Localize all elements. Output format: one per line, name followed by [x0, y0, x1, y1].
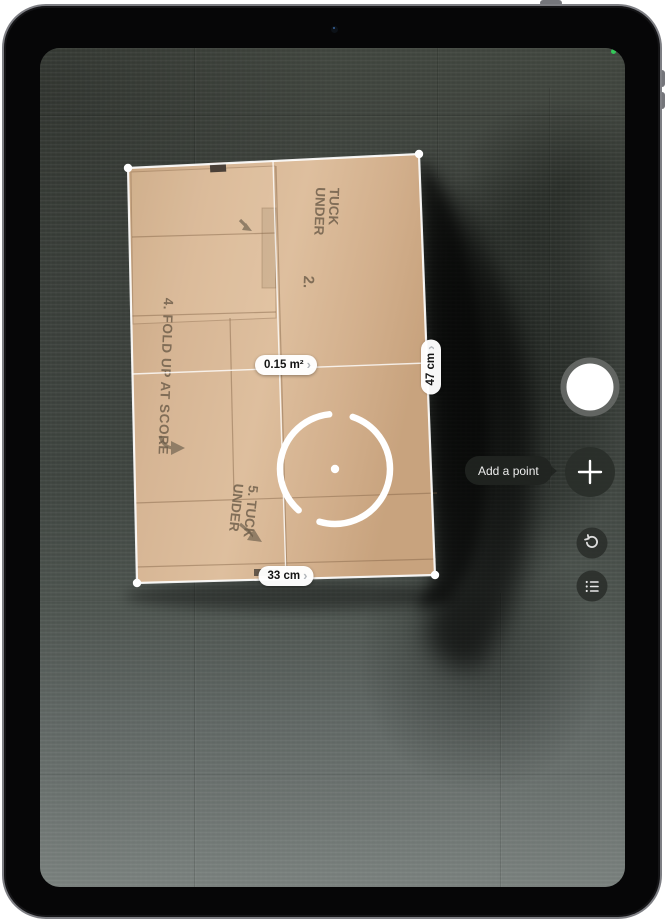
carpet-seam — [40, 115, 625, 116]
undo-arrow-icon — [583, 534, 602, 553]
plus-icon — [577, 459, 603, 485]
box-print-step-two: 2. — [300, 275, 317, 288]
add-point-tooltip: Add a point — [465, 456, 552, 485]
width-measurement-label[interactable]: 33 cm › — [259, 566, 314, 586]
undo-button[interactable] — [577, 528, 608, 559]
chevron-right-icon: › — [303, 569, 307, 582]
height-measurement-label[interactable]: 47 cm › — [421, 340, 441, 395]
carpet-seam — [194, 48, 195, 887]
carpet-seam — [549, 88, 550, 488]
box-print-tuck-top: TUCK UNDER — [311, 187, 341, 236]
carpet-seam — [500, 593, 501, 887]
shutter-button[interactable] — [561, 358, 620, 417]
chevron-right-icon: › — [307, 358, 311, 371]
list-bullet-icon — [583, 577, 601, 595]
camera-active-indicator — [611, 49, 616, 54]
add-point-button[interactable] — [565, 447, 615, 497]
measurement-list-button[interactable] — [577, 571, 608, 602]
front-camera — [331, 26, 338, 33]
screenshot-stage: 4. FOLD UP AT SCORE 2. TUCK UNDER 5. TUC… — [0, 0, 665, 923]
camera-viewfinder[interactable]: 4. FOLD UP AT SCORE 2. TUCK UNDER 5. TUC… — [40, 48, 625, 887]
box-print-tuck-bottom: 5. TUCK UNDER — [226, 483, 260, 538]
area-measurement-label[interactable]: 0.15 m² › — [255, 355, 317, 375]
carpet-seam — [40, 774, 625, 775]
chevron-right-icon: › — [424, 346, 437, 350]
ipad-device-frame: 4. FOLD UP AT SCORE 2. TUCK UNDER 5. TUC… — [2, 4, 662, 919]
carpet-seam — [437, 48, 438, 178]
carpet-seam — [40, 600, 625, 601]
